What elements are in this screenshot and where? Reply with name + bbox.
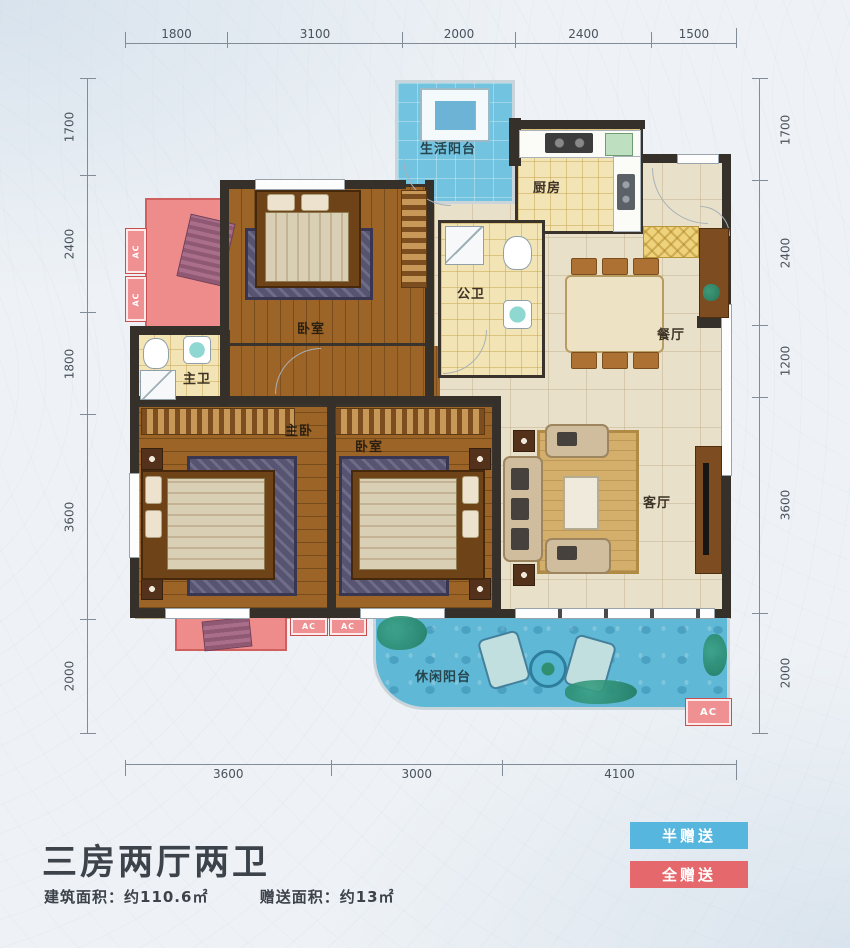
pillow (145, 476, 162, 504)
dimension-segment: 1800 (125, 32, 227, 44)
dimension-segment: 3100 (227, 32, 402, 44)
wardrobe (335, 408, 485, 435)
shower-icon (140, 370, 176, 400)
pillow (462, 510, 479, 538)
dimension-label: 3100 (228, 27, 402, 41)
dimension-segment: 2400 (80, 175, 96, 312)
dimension-label: 1500 (652, 27, 736, 41)
dimension-segment: 1700 (752, 78, 768, 180)
dimension-segment: 1700 (80, 78, 96, 175)
pillow (301, 194, 329, 211)
pillow (145, 510, 162, 538)
plan-title: 三房两厅两卫 (42, 834, 270, 885)
legend-full-gift: 全赠送 (630, 861, 748, 888)
wall-segment (130, 396, 501, 404)
floorplan-page: 1800 3100 2000 2400 1500 3600 3000 4100 … (0, 0, 850, 948)
dimension-segment: 2000 (752, 613, 768, 733)
wall-segment (493, 396, 501, 617)
dining-chair (633, 352, 659, 369)
wall-segment (515, 120, 645, 129)
room-label-dining: 餐厅 (657, 324, 685, 343)
dimension-segment: 3000 (331, 764, 502, 776)
loveseat (545, 424, 609, 458)
balcony-sliding-door (515, 608, 715, 619)
dimension-label: 1800 (126, 27, 227, 41)
dimension-label: 2000 (778, 658, 792, 689)
dimension-segment: 3600 (125, 764, 331, 776)
sink-icon (503, 300, 532, 329)
dining-chair (602, 258, 628, 275)
sofa-cushion (511, 528, 529, 550)
built-area-text: 建筑面积：约110.6㎡ (44, 888, 208, 906)
toilet-icon (503, 236, 532, 270)
nightstand (141, 448, 163, 470)
wall-segment (722, 476, 731, 617)
ac-tag: AC (685, 698, 732, 726)
dimension-label: 3000 (332, 767, 502, 781)
dimension-segment: 2400 (752, 180, 768, 324)
room-label-master-bath: 主卫 (183, 368, 211, 387)
dimension-label: 3600 (778, 490, 792, 521)
dimension-tick (80, 733, 96, 734)
dining-table (565, 275, 664, 353)
dimension-label: 4100 (503, 767, 736, 781)
dimension-label: 1800 (62, 348, 76, 379)
wall-segment (220, 180, 229, 406)
dimension-label: 3600 (62, 502, 76, 533)
tv-icon (703, 463, 709, 555)
window (721, 304, 732, 476)
dimension-tick (736, 764, 737, 776)
sofa-cushion (557, 432, 577, 446)
room-label-bedroom-top: 卧室 (297, 318, 325, 337)
ac-tag: AC (290, 617, 328, 636)
coffee-table (563, 476, 599, 530)
sofa-cushion (511, 498, 529, 520)
dimension-segment: 1200 (752, 325, 768, 398)
shower-icon (445, 226, 484, 265)
dimension-label: 2000 (403, 27, 515, 41)
room-label-kitchen: 厨房 (533, 177, 561, 196)
dimension-tick (752, 733, 768, 734)
legend-half-gift-label: 半赠送 (662, 825, 716, 846)
dining-chair (633, 258, 659, 275)
sink-icon (183, 336, 211, 364)
dimension-tick (736, 32, 737, 44)
dimension-line-top: 1800 3100 2000 2400 1500 (125, 32, 737, 44)
door-mat (643, 226, 699, 258)
room-label-living: 客厅 (643, 492, 671, 511)
window (165, 608, 250, 619)
sofa-cushion (557, 546, 577, 560)
dimension-segment: 1800 (80, 312, 96, 415)
nightstand (469, 578, 491, 600)
ac-tag-label: AC (132, 292, 141, 306)
dimension-segment: 3600 (752, 397, 768, 613)
dimension-label: 2400 (62, 229, 76, 260)
entry-door-opening (677, 154, 719, 164)
dimension-segment: 2000 (80, 619, 96, 733)
bed-mattress (359, 478, 457, 570)
dimension-label: 1700 (778, 114, 792, 145)
room-label-master-bedroom: 主卧 (285, 420, 313, 439)
hallway-floor (228, 346, 440, 399)
plant-icon (703, 284, 720, 301)
area-info: 建筑面积：约110.6㎡ 赠送面积：约13㎡ (44, 886, 441, 907)
ac-tag-label: AC (700, 707, 717, 718)
ac-unit (202, 617, 253, 652)
toilet-icon (143, 338, 169, 369)
dining-chair (571, 258, 597, 275)
side-table (513, 430, 535, 452)
nightstand (469, 448, 491, 470)
wall-segment (130, 326, 229, 335)
ac-tag: AC (329, 617, 367, 636)
ac-tag: AC (125, 276, 147, 322)
pillow (462, 476, 479, 504)
dimension-segment: 1500 (651, 32, 736, 44)
room-label-leisure-balcony: 休闲阳台 (415, 666, 471, 685)
dining-chair (571, 352, 597, 369)
dimension-label: 2400 (778, 238, 792, 269)
legend-full-gift-label: 全赠送 (662, 864, 716, 885)
kitchen-sink-icon (617, 174, 635, 210)
dimension-label: 1200 (778, 346, 792, 377)
pillow (267, 194, 295, 211)
dimension-line-left: 1700 2400 1800 3600 2000 (80, 78, 96, 734)
stove-icon (545, 133, 593, 153)
cutting-board (605, 133, 633, 156)
bed-mattress (167, 478, 265, 570)
shoe-cabinet (699, 228, 729, 318)
gift-area-text: 赠送面积：约13㎡ (260, 888, 395, 906)
balcony-table (529, 650, 567, 688)
ac-tag-label: AC (341, 622, 355, 631)
floorplan-drawing: AC AC AC AC AC (125, 78, 737, 736)
sofa-cushion (511, 468, 529, 490)
side-table (513, 564, 535, 586)
ac-tag-label: AC (132, 244, 141, 258)
dimension-label: 1700 (62, 112, 76, 143)
dimension-line-right: 1700 2400 1200 3600 2000 (752, 78, 768, 734)
dimension-label: 3600 (126, 767, 331, 781)
dimension-label: 2400 (516, 27, 651, 41)
dining-chair (602, 352, 628, 369)
dimension-segment: 3600 (80, 414, 96, 618)
window (129, 473, 140, 558)
loveseat (545, 538, 611, 574)
ac-tag: AC (125, 228, 147, 274)
dimension-line-bottom: 3600 3000 4100 (125, 764, 737, 776)
bed-mattress (265, 212, 349, 282)
wardrobe (401, 190, 427, 288)
wall-segment (130, 326, 139, 617)
wardrobe (141, 408, 295, 435)
dimension-segment: 4100 (502, 764, 736, 776)
window (255, 179, 345, 190)
dimension-segment: 2000 (402, 32, 515, 44)
legend-half-gift: 半赠送 (630, 822, 748, 849)
room-label-public-bath: 公卫 (457, 283, 485, 302)
ac-tag-label: AC (302, 622, 316, 631)
nightstand (141, 578, 163, 600)
room-label-life-balcony: 生活阳台 (420, 138, 476, 157)
dimension-label: 2000 (62, 661, 76, 692)
dimension-segment: 2400 (515, 32, 651, 44)
room-label-bedroom-mid: 卧室 (355, 436, 383, 455)
washing-machine (420, 88, 490, 142)
